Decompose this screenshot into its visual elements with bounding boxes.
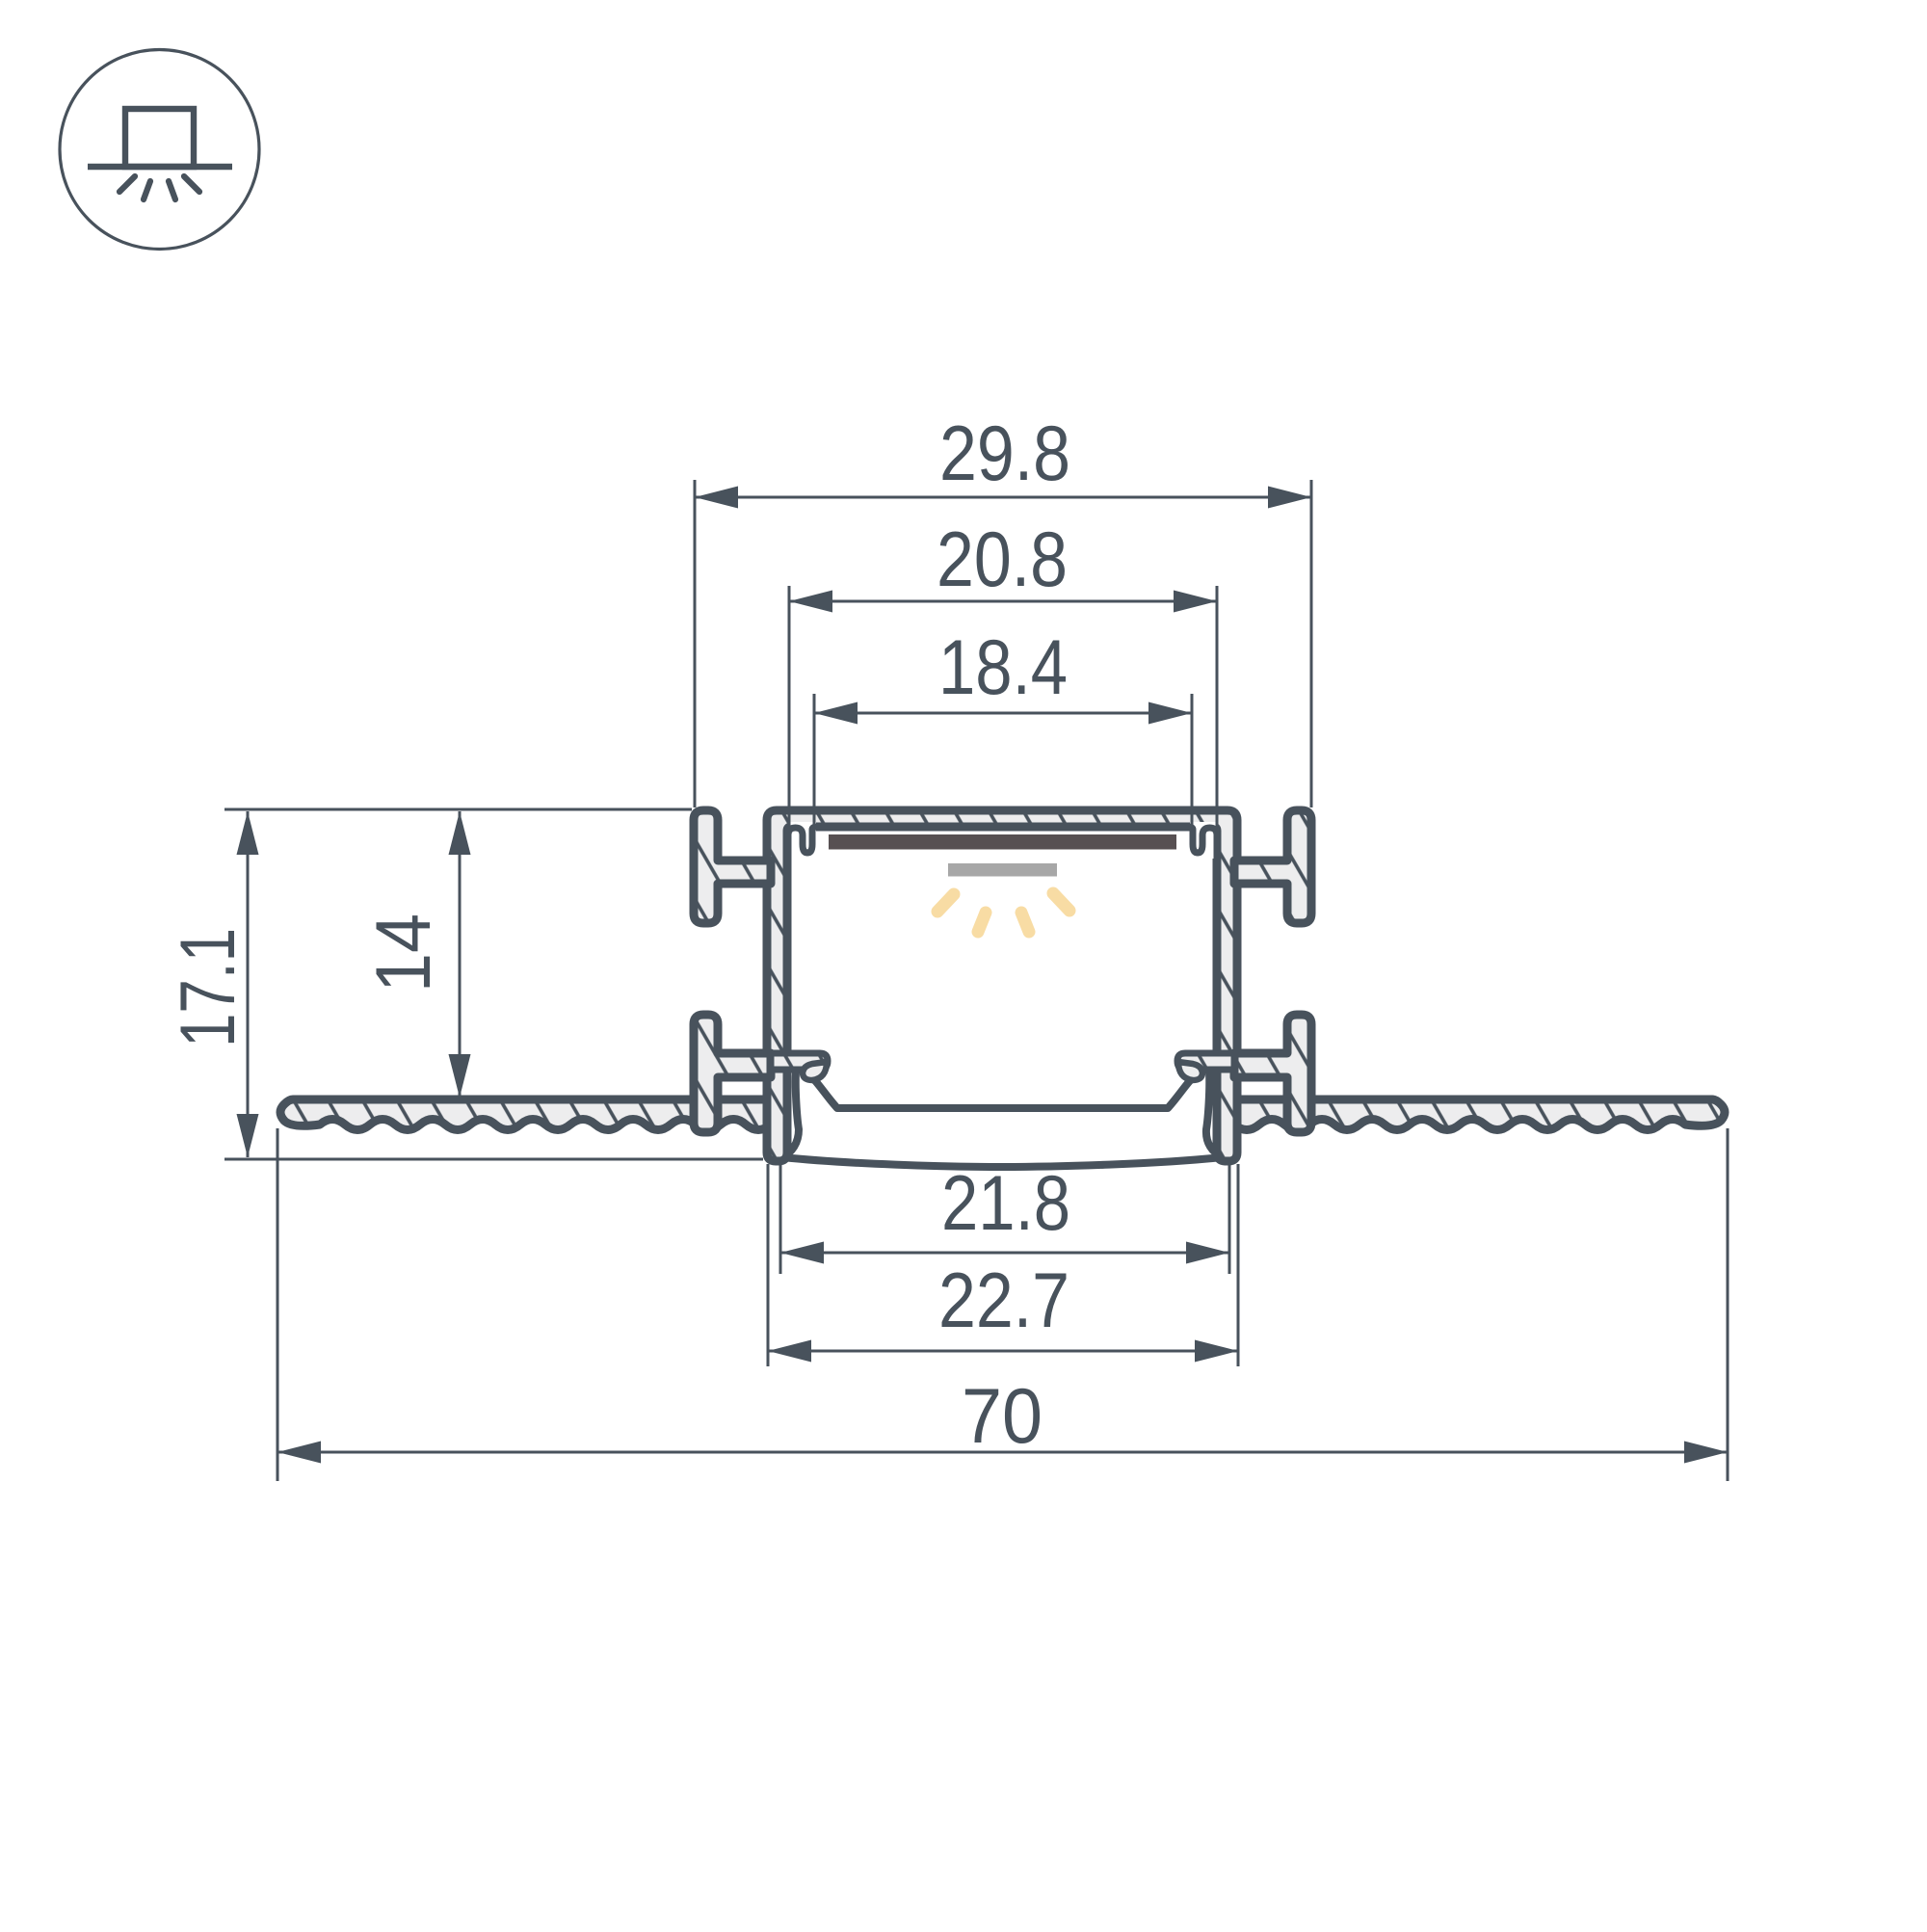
svg-text:18.4: 18.4 (938, 624, 1068, 711)
svg-text:22.7: 22.7 (938, 1257, 1069, 1344)
svg-text:21.8: 21.8 (941, 1160, 1070, 1247)
svg-text:17.1: 17.1 (165, 928, 251, 1047)
svg-text:14: 14 (360, 913, 447, 992)
svg-text:70: 70 (962, 1373, 1043, 1460)
svg-text:20.8: 20.8 (937, 516, 1068, 603)
svg-text:29.8: 29.8 (939, 410, 1070, 497)
